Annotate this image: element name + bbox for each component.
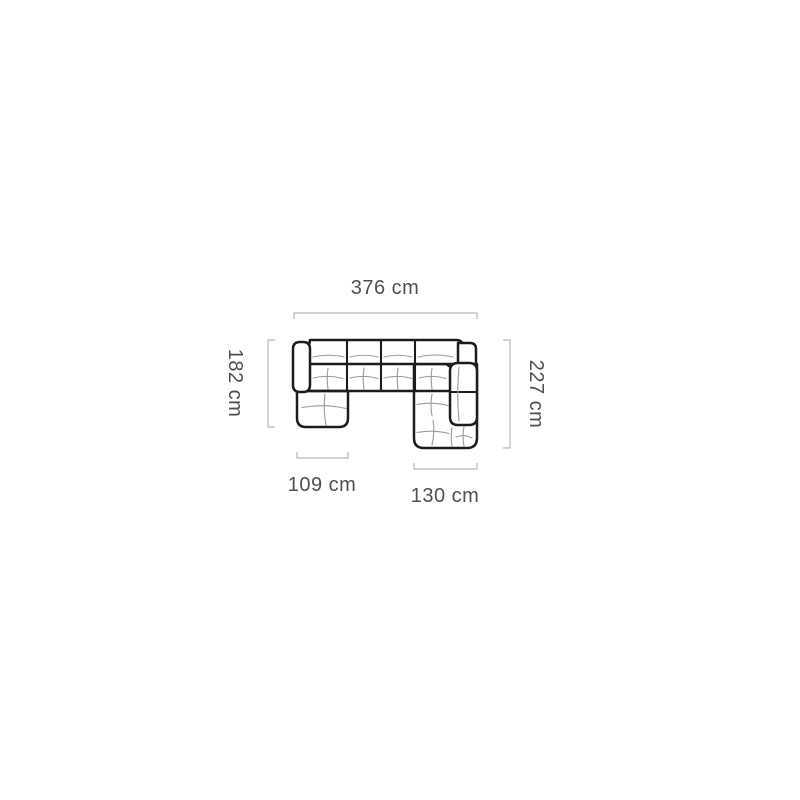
- dimension-line-bottom-left: [297, 452, 348, 458]
- dimension-line-bottom-right: [414, 463, 477, 469]
- dimension-right-chaise-width: 130 cm: [411, 463, 480, 507]
- seat-tuft: [327, 368, 328, 389]
- seat-tuft: [384, 376, 412, 378]
- dimension-line-right: [503, 340, 510, 448]
- dimension-line-top: [294, 313, 477, 319]
- dimension-label-right-depth: 227 cm: [525, 360, 547, 429]
- sofa-backrest: [306, 340, 463, 364]
- sofa-top-view-drawing: [293, 340, 477, 448]
- dimension-line-left: [268, 340, 275, 427]
- seat-tuft: [313, 376, 343, 378]
- dimension-label-left-chaise: 109 cm: [288, 474, 357, 496]
- dimension-right-depth: 227 cm: [503, 340, 547, 448]
- seat-tuft: [350, 376, 378, 378]
- sofa-left-armrest: [293, 342, 310, 392]
- dimension-total-width: 376 cm: [294, 277, 477, 319]
- sofa-corner-backrest-block: [458, 343, 476, 364]
- dimension-label-left-depth: 182 cm: [224, 349, 246, 418]
- seat-tuft: [363, 368, 364, 389]
- sofa-dimension-diagram: 376 cm 182 cm 227 cm 109 cm 130 cm: [0, 0, 800, 800]
- dimension-label-right-chaise: 130 cm: [411, 485, 480, 507]
- seat-tuft: [397, 368, 398, 389]
- dimension-left-depth: 182 cm: [224, 340, 275, 427]
- diagram-canvas: 376 cm 182 cm 227 cm 109 cm 130 cm: [0, 0, 800, 800]
- sofa-left-chaise: [297, 391, 348, 427]
- sofa-right-armrest: [450, 363, 477, 425]
- dimension-left-chaise-width: 109 cm: [288, 452, 357, 496]
- dimension-label-total-width: 376 cm: [351, 277, 420, 299]
